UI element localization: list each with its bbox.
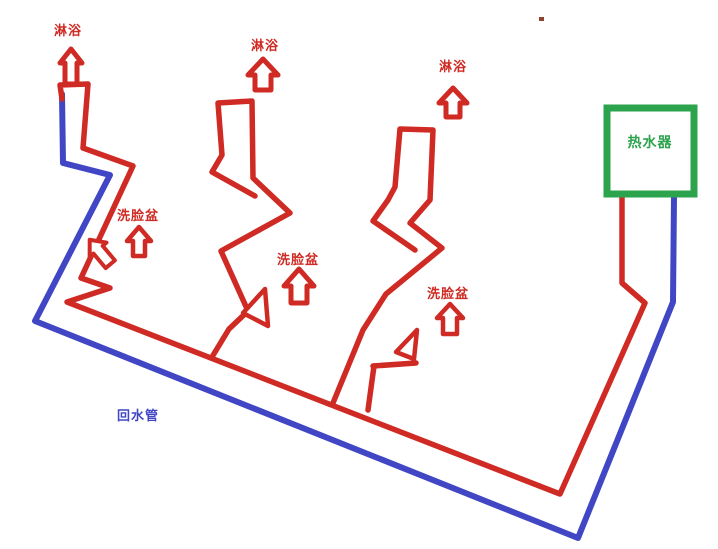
hot-pipe-basin3-bar: [373, 363, 416, 366]
drawing-canvas: 淋浴 淋浴 淋浴 洗脸盆 洗脸盆 洗脸盆 回水管 热水器: [0, 0, 718, 549]
basin2-tap-icon: [243, 289, 268, 326]
basin2-up-arrow-icon: [284, 269, 314, 303]
basin3-up-arrow-icon: [437, 304, 463, 334]
hot-pipe-group3-line: [333, 129, 442, 403]
basin1-label: 洗脸盆: [117, 205, 159, 224]
return-pipe-line: [35, 94, 674, 538]
shower2-up-arrow-icon: [248, 59, 278, 90]
shower2-label: 淋浴: [251, 35, 279, 54]
basin3-tap-icon: [396, 330, 417, 359]
hot-pipe-basin3-drop: [368, 366, 374, 410]
heater-label: 热水器: [606, 132, 694, 152]
stray-dot: [539, 17, 544, 21]
shower3-up-arrow-icon: [439, 88, 467, 117]
shower3-label: 淋浴: [439, 56, 467, 75]
basin2-label: 洗脸盆: [277, 249, 319, 268]
basin1-up-arrow-icon: [127, 227, 151, 256]
shower1-up-arrow-icon: [60, 49, 82, 84]
return-pipe-label: 回水管: [117, 405, 159, 424]
shower1-label: 淋浴: [54, 20, 82, 39]
hot-pipe-main-line: [60, 84, 645, 494]
basin3-label: 洗脸盆: [427, 283, 469, 302]
pipe-drawing: [0, 0, 718, 549]
